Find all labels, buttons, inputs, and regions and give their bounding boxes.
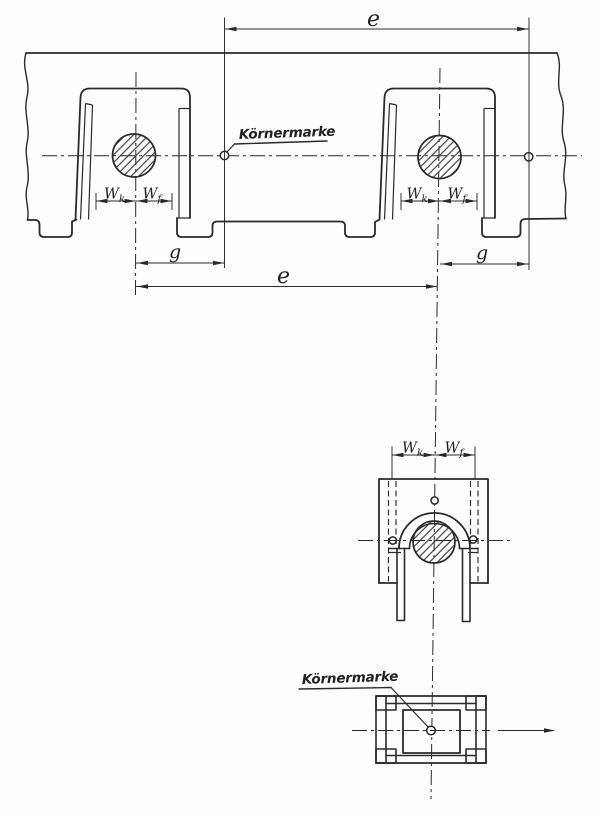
fork-prong-right [463,549,471,622]
arrowhead-right [517,262,528,266]
wf-base: W [143,187,159,203]
slot-right-gib-strip [385,104,397,220]
arrowhead-left [226,27,237,31]
arrowhead-right [426,284,437,288]
arrowhead-right [517,27,528,31]
break-line-left [25,53,29,220]
shaft-journal-side [413,521,455,563]
wf-base: W [445,441,461,457]
view-direction-arrowhead [544,728,555,732]
bottom-view-body [352,696,555,763]
dim-label-g-right: g [476,242,488,264]
dim-label-e-top: e [367,7,380,32]
slot-left-keeper-strip [177,109,190,219]
flange-right-bar [476,696,486,763]
wf-sub: f [461,193,468,205]
koernermarke-point-side-right [470,536,477,543]
left-slot-centerline [136,72,137,298]
dim-label-wk: Wk [104,187,125,206]
wf-base: W [448,187,464,203]
koernermarke-point-top [431,497,438,504]
dim-label-e-bottom: e [277,264,290,289]
flange-left-bar [376,696,386,763]
dim-wkwf-slot-left: Wk Wf [96,187,172,211]
fork-prong-left [397,549,405,621]
arrowhead-center-right [428,199,439,203]
bearing-slot-left [76,89,191,220]
arrowhead-left [137,284,148,288]
bottom-view: Körnermarke [299,669,555,763]
koernermarke-label-bottom: Körnermarke [302,669,399,688]
hidden-wall-left [389,481,397,582]
wk-base: W [402,441,418,457]
slot-left-gib-strip [81,104,93,220]
dim-label-wk: Wk [402,441,423,460]
wk-base: W [104,187,120,203]
wk-sub: k [421,193,427,205]
side-view-body [358,479,510,622]
koernermarke-underline-bottom [299,688,391,690]
arrowhead-outer-right [161,199,172,203]
wk-base: W [407,187,423,203]
arrowhead-outer-right [466,199,477,203]
bearing-slot-right [380,89,496,220]
arrowhead-center-right [125,199,136,203]
bottom-profile-left-foot [28,220,77,238]
dim-wkwf-side: Wk Wf [392,441,475,480]
bottom-profile-right-foot [482,218,566,237]
arrowhead-right [213,261,224,265]
dim-e-bottom: e [136,264,438,289]
koernermarke-leader-top [227,144,235,153]
part-outline [25,53,566,237]
dim-label-wf: Wf [448,187,469,206]
koernermarke-callout-bottom: Körnermarke [299,669,429,728]
koernermarke-label-top: Körnermarke [239,124,336,143]
arrowhead-outer-right [464,453,475,457]
drawing-sheet: Körnermarke e g g [0,0,600,816]
arrowhead-left [137,261,148,265]
engineering-drawing: Körnermarke e g g [0,0,600,816]
wk-sub: k [417,447,423,459]
dim-label-g-left: g [169,241,181,263]
dim-label-wk: Wk [407,187,428,206]
dim-label-wf: Wf [143,187,164,206]
dim-wkwf-slot-right: Wk Wf [401,187,477,211]
hidden-wall-right [471,481,479,582]
slot-right-keeper-strip [482,109,495,219]
dim-g-right: g [440,242,529,266]
wk-sub: k [119,193,125,205]
bottom-profile-center [177,218,380,237]
break-line-right [557,53,566,219]
dim-label-wf: Wf [445,441,466,460]
arrowhead-left [441,262,452,266]
dim-g-left: g [136,241,225,265]
arrowhead-center-right [424,453,435,457]
wf-sub: f [156,193,163,205]
